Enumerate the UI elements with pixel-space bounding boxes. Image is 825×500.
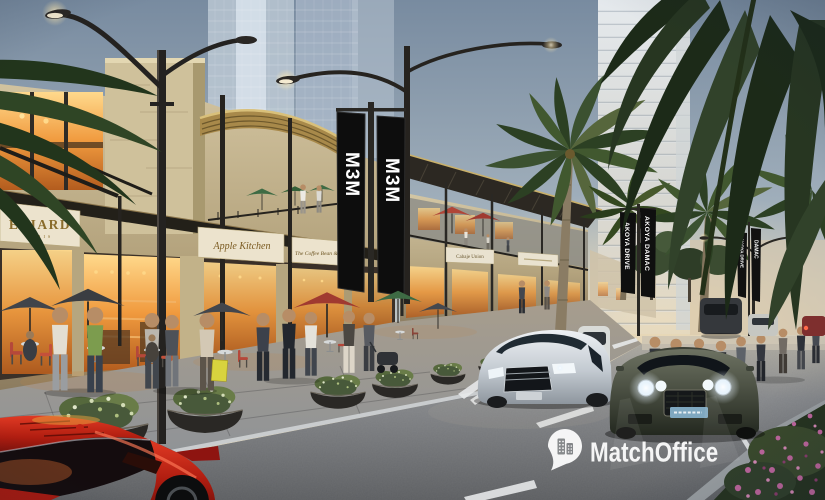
rendering-canvas: EDIARD PARIS Apple Kitchen The Coffee Be… xyxy=(0,0,825,500)
vignette xyxy=(0,0,825,500)
watermark-brand-text: MatchOffice xyxy=(590,437,718,468)
street-rendering: EDIARD PARIS Apple Kitchen The Coffee Be… xyxy=(0,0,825,500)
